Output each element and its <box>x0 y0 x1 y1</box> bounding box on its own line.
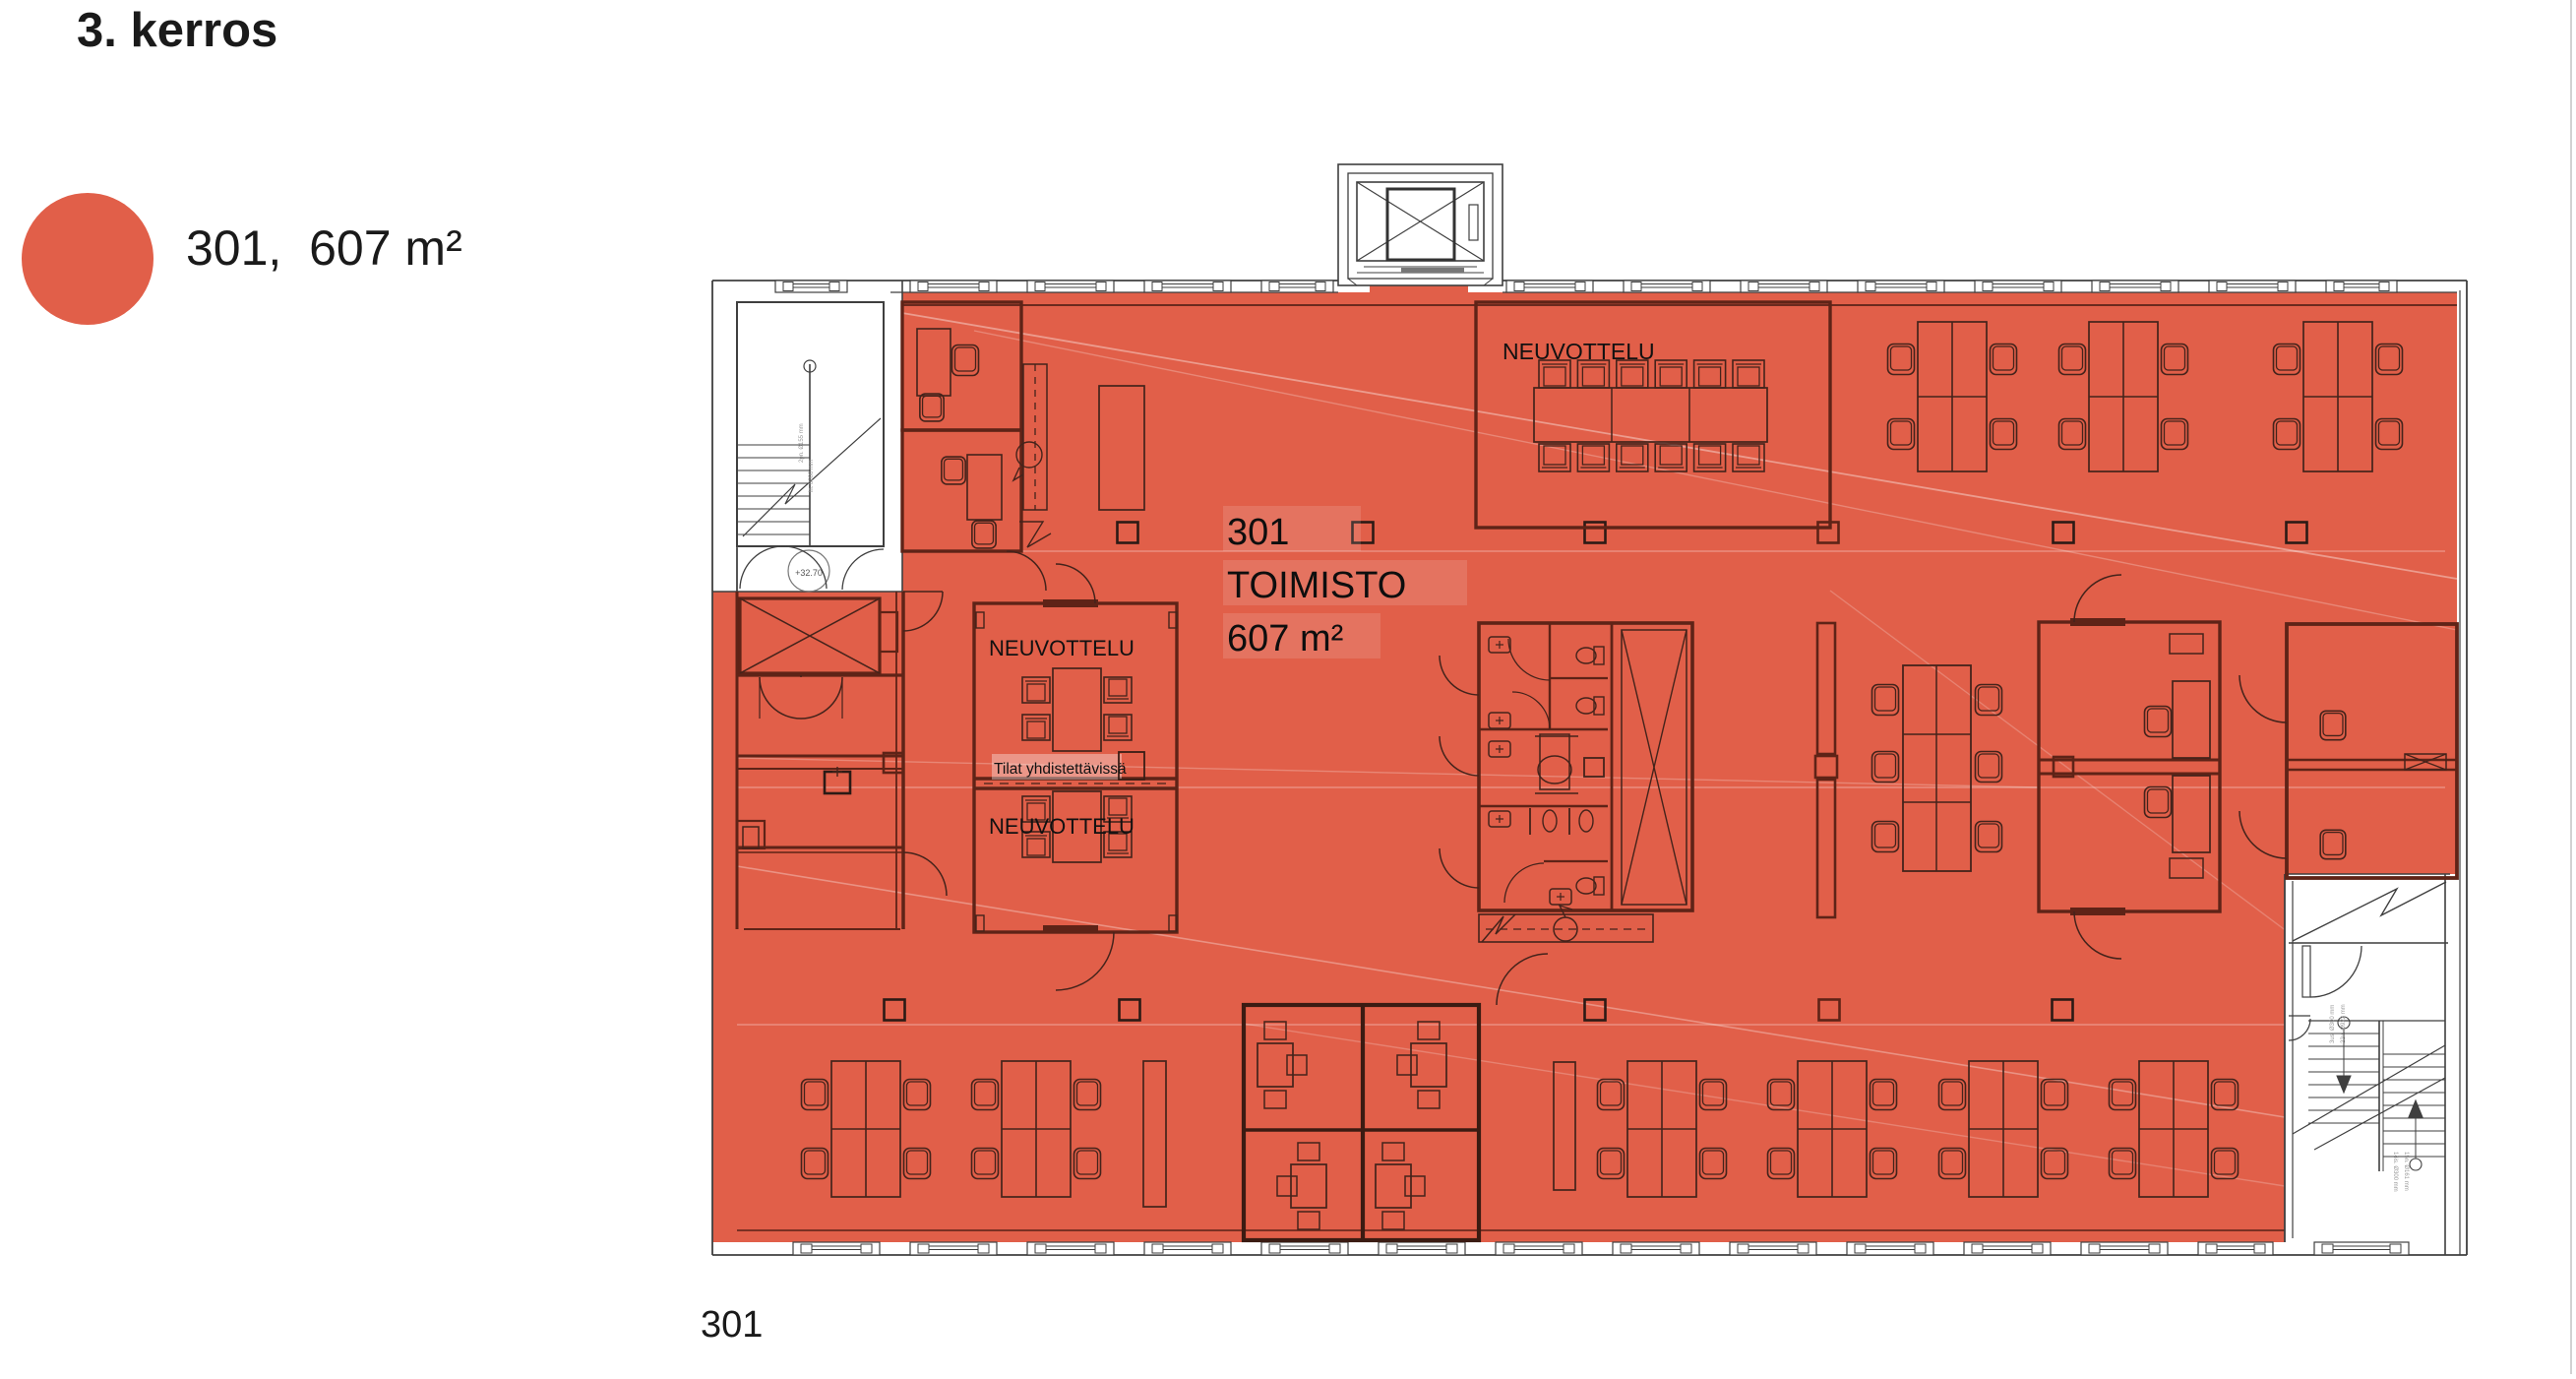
svg-text:301: 301 <box>1227 512 1289 553</box>
svg-text:2pn. Ø155 mm: 2pn. Ø155 mm <box>799 423 805 463</box>
svg-text:NEUVOTTELU: NEUVOTTELU <box>989 636 1135 660</box>
svg-text:301: 301 <box>701 1304 763 1346</box>
svg-text:3us. Ø300 mm: 3us. Ø300 mm <box>2330 1005 2336 1043</box>
svg-text:+32.70: +32.70 <box>795 568 823 578</box>
svg-text:301, 607 m²: 301, 607 m² <box>186 220 462 276</box>
svg-text:NEUVOTTELU: NEUVOTTELU <box>989 814 1135 839</box>
svg-text:TOIMISTO: TOIMISTO <box>1227 565 1406 606</box>
svg-text:NEUVOTTELU: NEUVOTTELU <box>1503 339 1655 364</box>
svg-text:14is. Ø300 mm: 14is. Ø300 mm <box>2392 1152 2398 1192</box>
svg-text:in. 8000 mm: in. 8000 mm <box>809 460 815 492</box>
svg-text:607 m²: 607 m² <box>1227 618 1343 659</box>
svg-text:Tilat yhdistettävissä: Tilat yhdistettävissä <box>994 761 1127 778</box>
svg-text:3. kerros: 3. kerros <box>77 4 277 57</box>
svg-text:22u. Ø922 mm: 22u. Ø922 mm <box>2341 1004 2347 1043</box>
svg-text:15n. Ø161 mm: 15n. Ø161 mm <box>2403 1152 2409 1191</box>
